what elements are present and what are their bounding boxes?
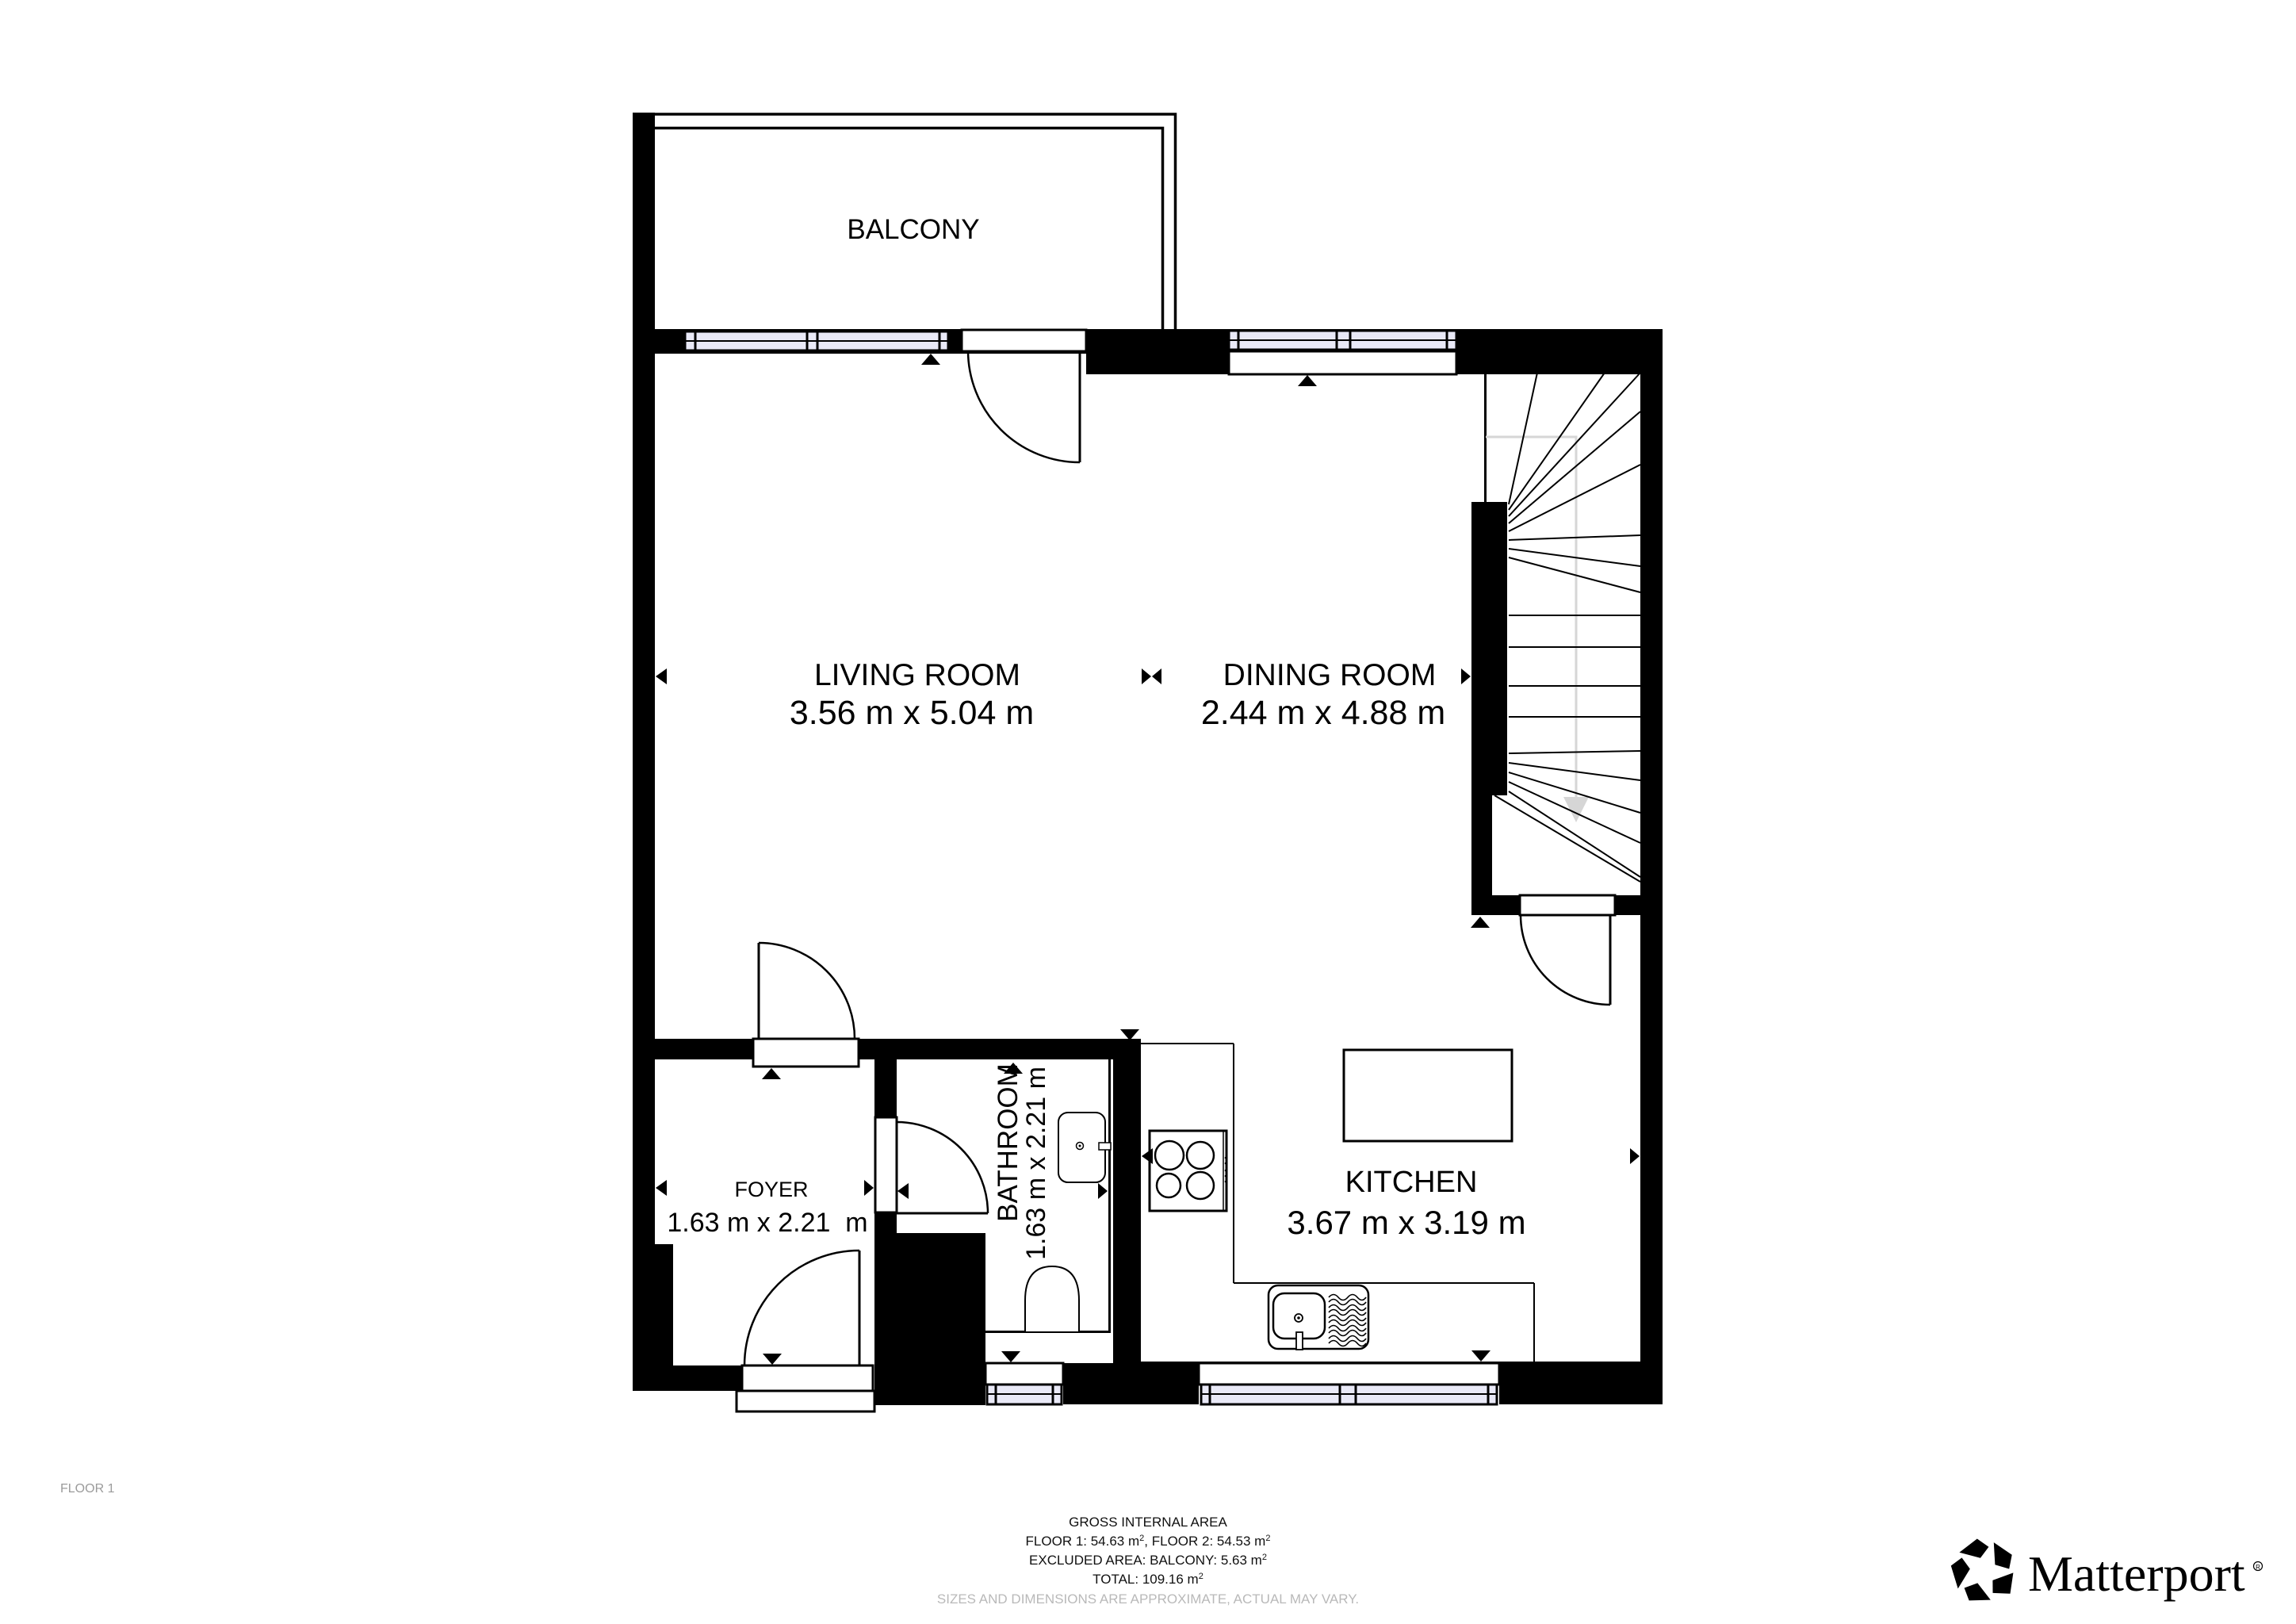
- svg-text:2.44 m x 4.88 m: 2.44 m x 4.88 m: [1201, 694, 1445, 732]
- svg-text:R: R: [2256, 1564, 2260, 1571]
- svg-text:SIZES AND DIMENSIONS ARE APPRO: SIZES AND DIMENSIONS ARE APPROXIMATE, AC…: [937, 1591, 1359, 1607]
- svg-text:DINING ROOM: DINING ROOM: [1223, 658, 1437, 692]
- svg-text:BATHROOM: BATHROOM: [993, 1063, 1024, 1222]
- svg-text:3.67 m x 3.19 m: 3.67 m x 3.19 m: [1287, 1204, 1525, 1241]
- svg-text:1.63 m x 2.21 m: 1.63 m x 2.21 m: [1021, 1067, 1051, 1260]
- svg-text:TOTAL: 109.16 m2: TOTAL: 109.16 m2: [1093, 1572, 1203, 1587]
- svg-text:FLOOR 1: 54.63 m2, FLOOR 2: 54: FLOOR 1: 54.63 m2, FLOOR 2: 54.53 m2: [1026, 1534, 1271, 1549]
- svg-text:3.56 m x 5.04 m: 3.56 m x 5.04 m: [790, 694, 1034, 732]
- svg-text:LIVING ROOM: LIVING ROOM: [814, 658, 1020, 692]
- svg-text:FOYER: FOYER: [734, 1178, 808, 1201]
- svg-text:GROSS INTERNAL AREA: GROSS INTERNAL AREA: [1069, 1515, 1227, 1530]
- svg-text:BALCONY: BALCONY: [847, 214, 979, 245]
- svg-text:FLOOR 1: FLOOR 1: [60, 1482, 115, 1496]
- svg-text:KITCHEN: KITCHEN: [1345, 1166, 1478, 1199]
- svg-text:EXCLUDED AREA: BALCONY: 5.63 m: EXCLUDED AREA: BALCONY: 5.63 m2: [1029, 1553, 1267, 1568]
- svg-text:Matterport: Matterport: [2028, 1545, 2245, 1602]
- svg-text:1.63 m x 2.21 m: 1.63 m x 2.21 m: [667, 1208, 867, 1238]
